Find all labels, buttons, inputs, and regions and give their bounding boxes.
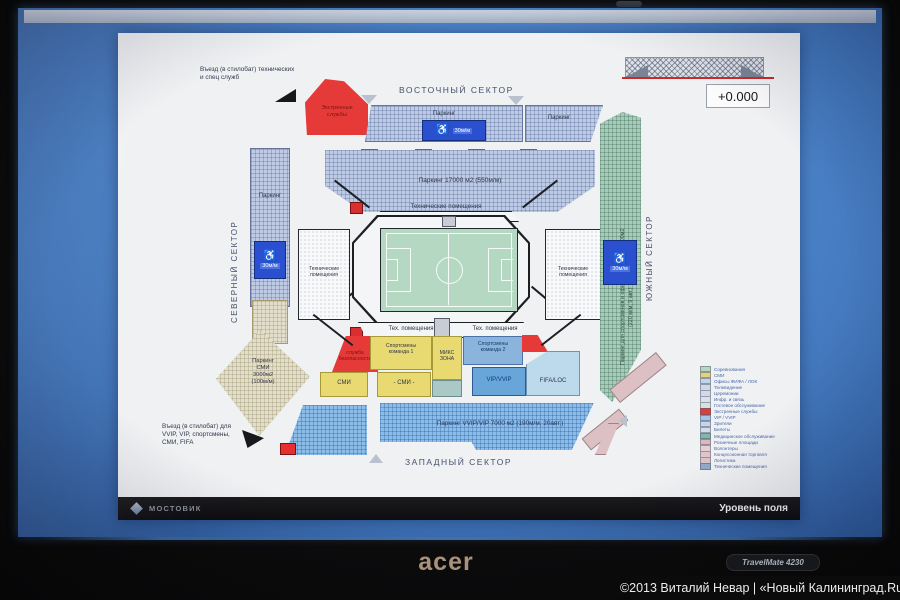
east-parking-strip-2: Паркинг	[525, 105, 603, 142]
east-disabled-parking: ♿ 30м/м	[422, 120, 486, 141]
disabled-capacity-label: 30м/м	[610, 266, 629, 272]
legend-label: Офисы ФИФА / ЛОК	[714, 379, 757, 384]
legend-label: Волонтеры	[714, 446, 738, 451]
legend-label: Розничные площади	[714, 440, 758, 445]
screen-top-strip	[24, 10, 876, 23]
legend-label: Церемонии	[714, 391, 738, 396]
cross-section-end-right	[741, 65, 763, 77]
legend-item: Технические помещения	[700, 464, 812, 470]
team1-zone: Спортсмены команда 1	[370, 336, 432, 370]
north-parking-label: Паркинг	[251, 193, 289, 201]
media-parking-label: Паркинг СМИ 3000м2 (100м/м)	[238, 358, 288, 386]
media-zone-1-label: СМИ	[321, 380, 367, 388]
laptop-photo: Въезд (в стилобат) технических и спец сл…	[0, 0, 900, 600]
legend-label: Гостевое обслуживание	[714, 403, 765, 408]
cross-section-end-left	[626, 65, 648, 77]
title-bar: МОСТОВИК Уровень поля	[118, 497, 800, 520]
pitch-center-circle	[436, 257, 463, 284]
acer-logo: acer	[398, 548, 494, 577]
mix-zone: МИКС ЗОНА	[432, 336, 462, 380]
vip-zone-label: VIP/VVIP	[473, 377, 525, 385]
legend-label: Концессионная торговля	[714, 452, 767, 457]
emergency-marker	[350, 202, 363, 214]
plan-page: Въезд (в стилобат) технических и спец сл…	[118, 33, 800, 520]
south-disabled-parking: ♿ 30м/м	[603, 240, 637, 285]
vip-parking-label: Паркинг VVIP/VIP 7000 м2 (190м/м, 20авт.…	[420, 420, 580, 428]
laptop-screen: Въезд (в стилобат) технических и спец сл…	[18, 8, 882, 537]
legend-label: Зрители	[714, 421, 732, 426]
tech-short-right-label: Тех. помещения	[460, 326, 530, 334]
north-disabled-parking: ♿ 30м/м	[254, 241, 286, 279]
legend: СоревнованияСМИОфисы ФИФА / ЛОКТелевиден…	[700, 366, 812, 470]
watermark-text: ©2013 Виталий Невар | «Новый Калининград…	[620, 581, 900, 595]
tech-room-right-label: Технические помещения	[548, 266, 598, 278]
stand-cross-section	[625, 57, 764, 78]
media-zone-2: - СМИ -	[377, 372, 431, 397]
legend-label: Инфр. и связь	[714, 397, 744, 402]
sector-label-south: ЮЖНЫЙ СЕКТОР	[645, 201, 654, 301]
tech-room-left-label: Технические помещения	[300, 266, 348, 278]
vip-zone: VIP/VVIP	[472, 367, 526, 396]
west-marker-icon	[369, 454, 383, 463]
fifa-zone: FIFA/LOC	[526, 351, 580, 396]
media-zone-2-label: - СМИ -	[378, 380, 430, 388]
legend-label: Логистика	[714, 458, 735, 463]
wheelchair-icon: ♿	[613, 254, 627, 265]
legend-color-chip	[700, 463, 711, 470]
east-marker2-icon	[508, 96, 524, 105]
wheelchair-icon: ♿	[436, 125, 450, 136]
team2-label: Спортсмены команда 2	[466, 341, 520, 353]
disabled-capacity-label: 30м/м	[453, 128, 472, 134]
elevation-box: +0.000	[706, 84, 770, 108]
wheelchair-icon: ♿	[263, 251, 277, 262]
legend-label: Экстренные службы	[714, 409, 757, 414]
entry-top-arrow-icon	[275, 89, 296, 102]
model-badge-text: TravelMate 4230	[742, 558, 804, 567]
legend-label: VIP / VVIP	[714, 415, 736, 420]
tech-room-left: Технические помещения	[298, 229, 350, 320]
mostovik-logo-icon	[130, 502, 143, 515]
vip-parking-strip-left	[285, 405, 367, 455]
field-tunnel-top	[442, 216, 456, 227]
football-pitch	[380, 228, 518, 312]
tech-room-right: Технические помещения	[545, 229, 602, 320]
south-parking-strip: Паркинг для спортсменов и официальных ли…	[600, 112, 641, 402]
vip-parking-red-box	[280, 443, 296, 455]
field-level-red-line	[622, 77, 774, 79]
model-badge: TravelMate 4230	[726, 554, 820, 571]
east-parking-1-label: Паркинг	[366, 111, 522, 119]
legend-label: Технические помещения	[714, 464, 767, 469]
east-parking-strip-1: Паркинг ♿ 30м/м	[365, 105, 523, 142]
team1-label: Спортсмены команда 1	[373, 343, 429, 355]
mostovik-logo-text: МОСТОВИК	[149, 504, 202, 513]
media-zone-1: СМИ	[320, 372, 368, 397]
watermark-bar: ©2013 Виталий Невар | «Новый Калининград…	[630, 576, 900, 600]
fifa-zone-label: FIFA/LOC	[527, 378, 579, 386]
team2-zone: Спортсмены команда 2	[463, 336, 523, 365]
north-parking-strip: Паркинг ♿ 30м/м	[250, 148, 290, 307]
pitch-goal-left	[386, 259, 398, 281]
tech-band-top-label: Технические помещения	[376, 203, 516, 211]
players-tunnel	[434, 318, 450, 338]
sector-label-north: СЕВЕРНЫЙ СЕКТОР	[230, 218, 239, 323]
elevation-value: +0.000	[718, 89, 758, 104]
legend-label: Билеты	[714, 427, 730, 432]
emergency-services-area: Экстренные службы	[305, 79, 368, 135]
legend-label: Медицинское обслуживание	[714, 434, 775, 439]
legend-label: Соревнования	[714, 367, 745, 372]
sector-label-west: ЗАПАДНЫЙ СЕКТОР	[405, 457, 512, 467]
mix-zone-annex	[432, 380, 462, 397]
east-parking-2-label: Паркинг	[526, 115, 592, 123]
media-parking-area: Паркинг СМИ 3000м2 (100м/м)	[216, 330, 310, 436]
mix-zone-label: МИКС ЗОНА	[433, 350, 461, 362]
pitch-goal-right	[501, 259, 513, 281]
vip-parking-strip-right: Паркинг VVIP/VIP 7000 м2 (190м/м, 20авт.…	[380, 403, 598, 450]
disabled-capacity-label: 30м/м	[260, 263, 279, 269]
legend-label: СМИ	[714, 373, 724, 378]
sheet-caption: Уровень поля	[719, 503, 788, 514]
sector-label-east: ВОСТОЧНЫЙ СЕКТОР	[399, 85, 514, 95]
legend-label: Телевидение	[714, 385, 742, 390]
hinge-line	[40, 537, 860, 540]
emergency-services-label: Экстренные службы	[313, 105, 361, 119]
webcam	[616, 1, 642, 7]
